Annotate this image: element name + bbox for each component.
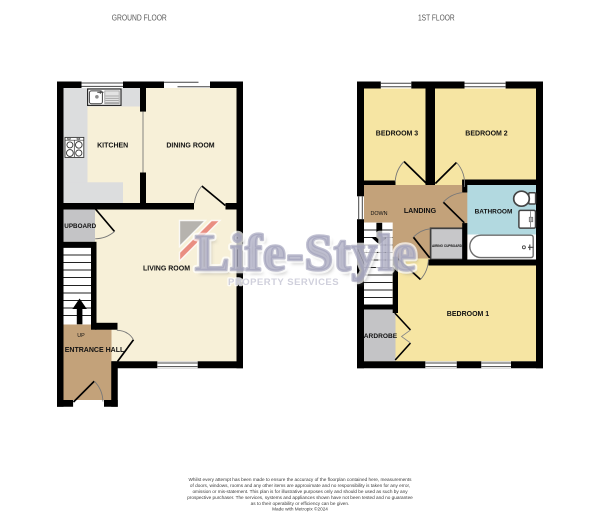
- svg-text:Life-Style: Life-Style: [195, 225, 417, 282]
- svg-text:Whilst every attempt has been: Whilst every attempt has been made to en…: [188, 477, 412, 482]
- svg-text:ENTRANCE HALL: ENTRANCE HALL: [65, 347, 125, 354]
- svg-text:LIVING ROOM: LIVING ROOM: [143, 266, 190, 273]
- svg-text:Made with Metropix ©2024: Made with Metropix ©2024: [272, 506, 328, 512]
- svg-text:omission or mis-statement. Thi: omission or mis-statement. This plan is …: [192, 489, 408, 494]
- svg-text:DOWN: DOWN: [370, 211, 387, 217]
- svg-text:BEDROOM 1: BEDROOM 1: [447, 311, 490, 318]
- svg-text:as to their operability or eff: as to their operability or efficiency ca…: [251, 501, 350, 506]
- svg-text:AIRING CUPBOARD: AIRING CUPBOARD: [432, 243, 462, 248]
- svg-text:LANDING: LANDING: [404, 207, 437, 215]
- svg-text:PROPERTY SERVICES: PROPERTY SERVICES: [228, 277, 339, 288]
- svg-text:BEDROOM 2: BEDROOM 2: [465, 131, 508, 138]
- svg-text:of doors, windows, rooms and a: of doors, windows, rooms and any other i…: [190, 483, 410, 488]
- svg-text:BATHROOM: BATHROOM: [475, 209, 513, 216]
- svg-text:1ST FLOOR: 1ST FLOOR: [418, 14, 455, 23]
- svg-text:KITCHEN: KITCHEN: [97, 143, 128, 150]
- svg-text:BEDROOM 3: BEDROOM 3: [376, 131, 419, 138]
- svg-text:UP: UP: [77, 333, 85, 339]
- svg-text:UPBOARD: UPBOARD: [64, 223, 96, 230]
- svg-text:prospective purchaser. The ser: prospective purchaser. The services, sys…: [187, 495, 413, 500]
- svg-text:GROUND FLOOR: GROUND FLOOR: [112, 14, 167, 23]
- svg-text:DINING ROOM: DINING ROOM: [166, 142, 214, 149]
- svg-text:ARDROBE: ARDROBE: [364, 333, 398, 340]
